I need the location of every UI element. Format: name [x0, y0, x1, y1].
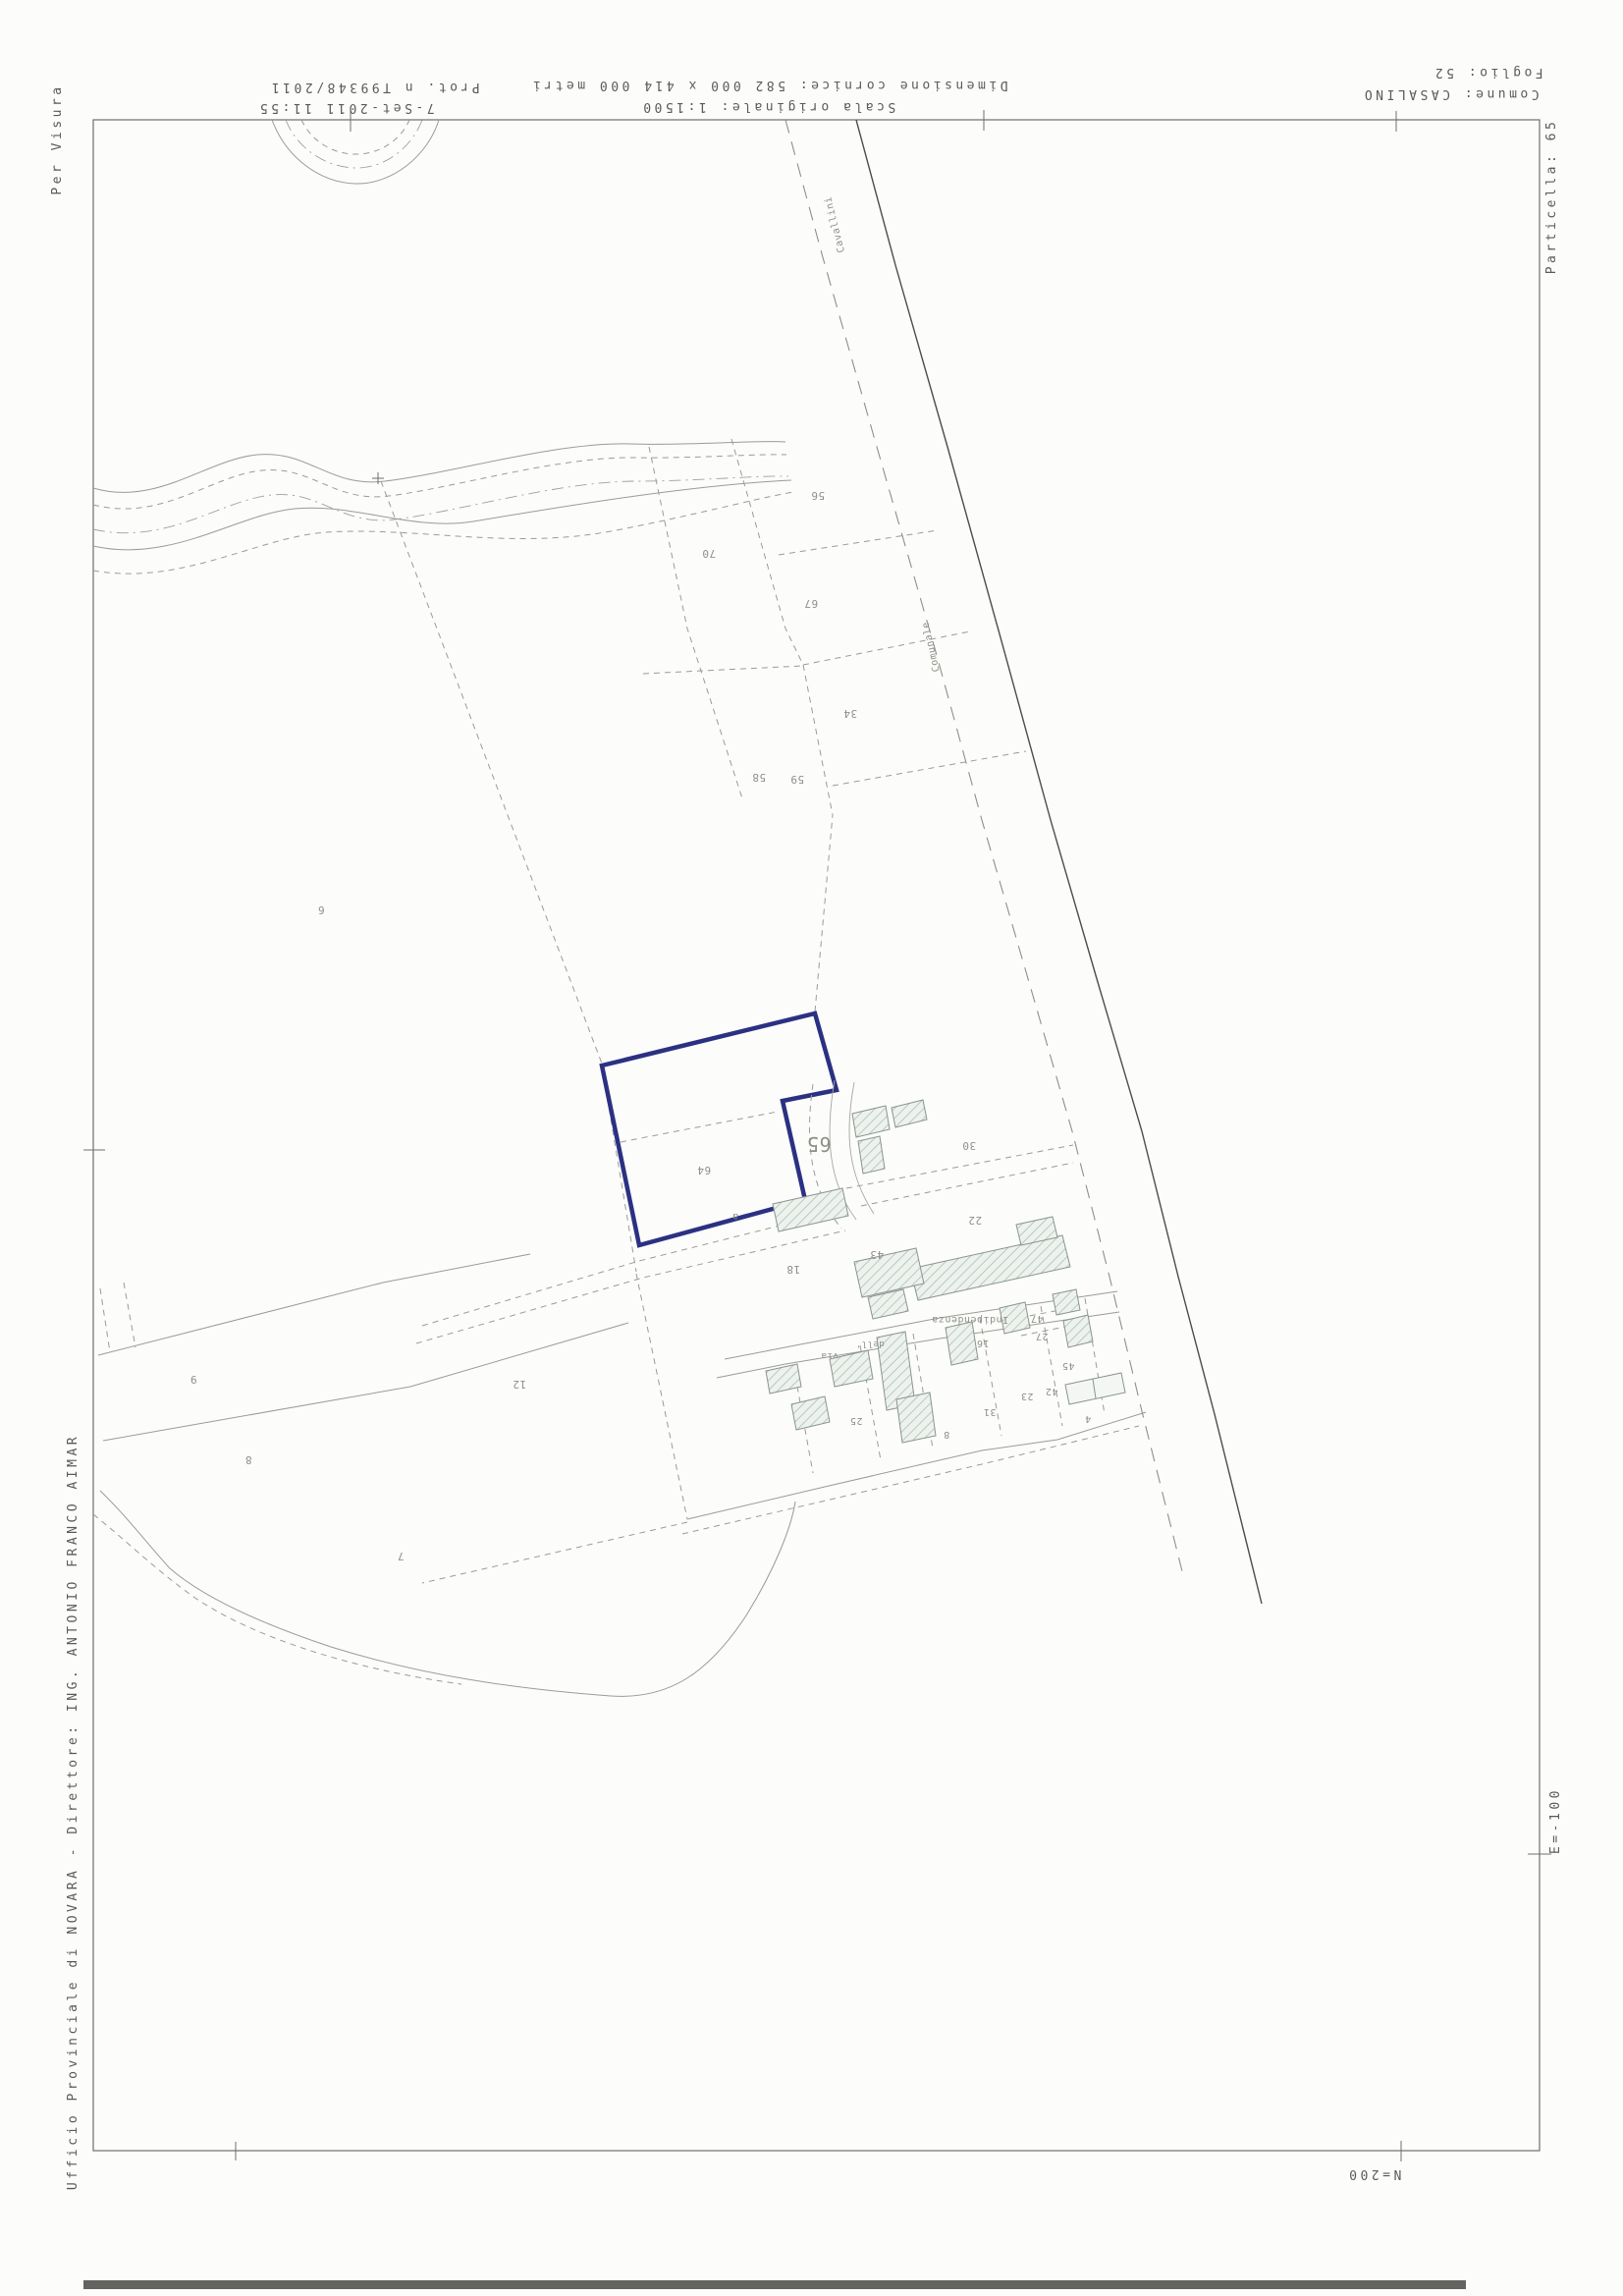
parcel-number-label: 43	[870, 1248, 884, 1261]
parcel-number-label: 6	[317, 903, 324, 916]
comune-label: Comune: CASALINO	[1361, 86, 1539, 101]
parcel-number-label: 27	[1035, 1331, 1048, 1341]
per-visura-label: Per Visura	[50, 83, 65, 194]
foglio-label: Foglio: 52	[1432, 65, 1542, 80]
parcel-number-label: 58	[752, 771, 766, 784]
parcel-number-label: 70	[702, 547, 716, 560]
parcel-number-label: 34	[843, 707, 857, 720]
parcel-number-label: 67	[804, 597, 818, 610]
parcel-number-label: 8	[244, 1453, 251, 1466]
office-director-label: Ufficio Provinciale di NOVARA - Direttor…	[66, 1434, 81, 2190]
parcel-number-label: 30	[962, 1139, 976, 1152]
parcel-number-label: 16	[976, 1338, 989, 1348]
parcel-number-label: 42	[1045, 1386, 1057, 1396]
original-scale-label: Scala originale: 1:1500	[640, 99, 896, 114]
east-coordinate-label: E=-100	[1548, 1787, 1563, 1854]
parcel-number-label: 45	[1061, 1360, 1074, 1371]
parcel-number-label: 59	[790, 773, 804, 786]
subaltern-label: a	[732, 1211, 739, 1222]
parcel-number-label: 18	[786, 1263, 800, 1276]
parcel-number-label: 25	[849, 1415, 862, 1426]
date-time-label: 7-Set-2011 11:55	[256, 100, 434, 115]
protocol-number-label: Prot. n T99348/2011	[268, 80, 479, 94]
parcel-number-label: 7	[397, 1550, 404, 1562]
parcel-number-label: 8	[944, 1429, 950, 1440]
cadastral-map-scan: CavalliniComunale705667345859664a6530224…	[0, 0, 1623, 2296]
street-name-label: via	[821, 1350, 839, 1360]
parcel-number-label: 47	[1030, 1313, 1043, 1324]
scan-edge-artifact	[83, 2280, 1466, 2289]
particella-label: Particella: 65	[1544, 119, 1559, 275]
map-canvas: CavalliniComunale705667345859664a6530224…	[0, 0, 1623, 2296]
parcel-number-label: 4	[1085, 1413, 1092, 1424]
street-name-label: dell'	[855, 1339, 885, 1348]
parcel-number-label: 23	[1020, 1391, 1033, 1401]
north-coordinate-label: N=200	[1346, 2166, 1402, 2181]
parcel-number-label: 12	[513, 1378, 526, 1391]
street-name-label: Indipendenza	[932, 1314, 1008, 1325]
parcel-number-label: 56	[811, 489, 825, 502]
parcel-number-label: 9	[189, 1373, 196, 1386]
subject-parcel-number: 65	[806, 1132, 831, 1156]
frame-dimension-label: Dimensione cornice: 582 000 x 414 000 me…	[529, 78, 1007, 92]
parcel-number-label: 64	[697, 1164, 711, 1176]
parcel-number-label: 31	[983, 1406, 996, 1417]
parcel-number-label: 22	[968, 1214, 982, 1227]
